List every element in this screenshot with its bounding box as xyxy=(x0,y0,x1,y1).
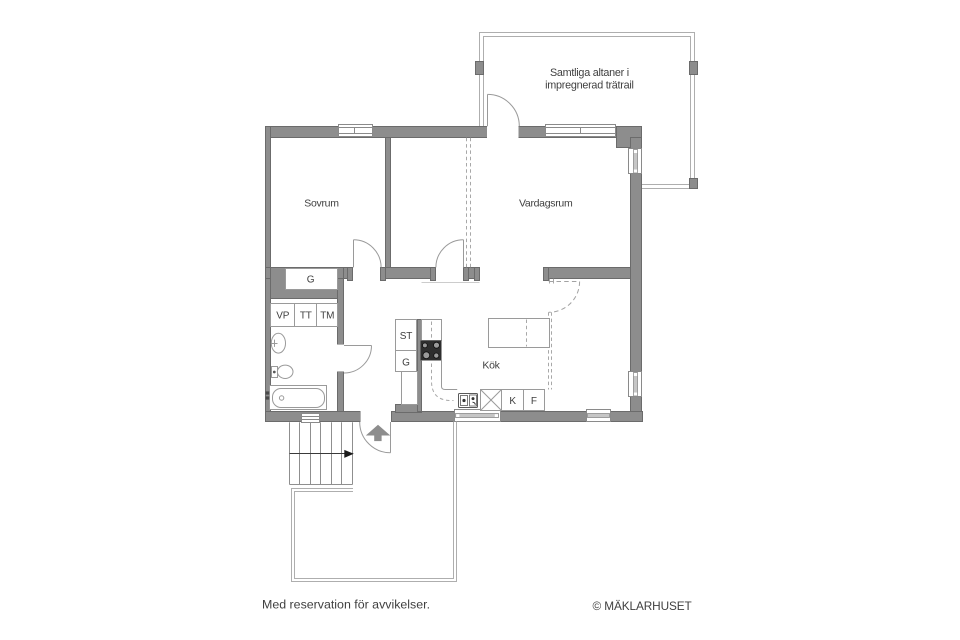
svg-text:Samtliga altaner i: Samtliga altaner i xyxy=(550,67,629,79)
svg-text:ST: ST xyxy=(400,331,412,342)
svg-text:Med reservation för avvikelser: Med reservation för avvikelser. xyxy=(262,598,430,612)
svg-text:Kök: Kök xyxy=(482,359,500,371)
svg-text:impregnerad trätrail: impregnerad trätrail xyxy=(545,80,634,92)
svg-text:F: F xyxy=(531,396,537,407)
svg-text:© MÄKLARHUSET: © MÄKLARHUSET xyxy=(593,599,692,613)
svg-text:TT: TT xyxy=(300,310,312,321)
svg-text:Vardagsrum: Vardagsrum xyxy=(519,197,573,209)
svg-text:G: G xyxy=(402,357,410,368)
svg-text:TM: TM xyxy=(320,310,334,321)
svg-text:VP: VP xyxy=(276,310,289,321)
svg-text:Sovrum: Sovrum xyxy=(304,197,339,209)
svg-text:G: G xyxy=(307,274,315,285)
svg-text:K: K xyxy=(509,396,516,407)
